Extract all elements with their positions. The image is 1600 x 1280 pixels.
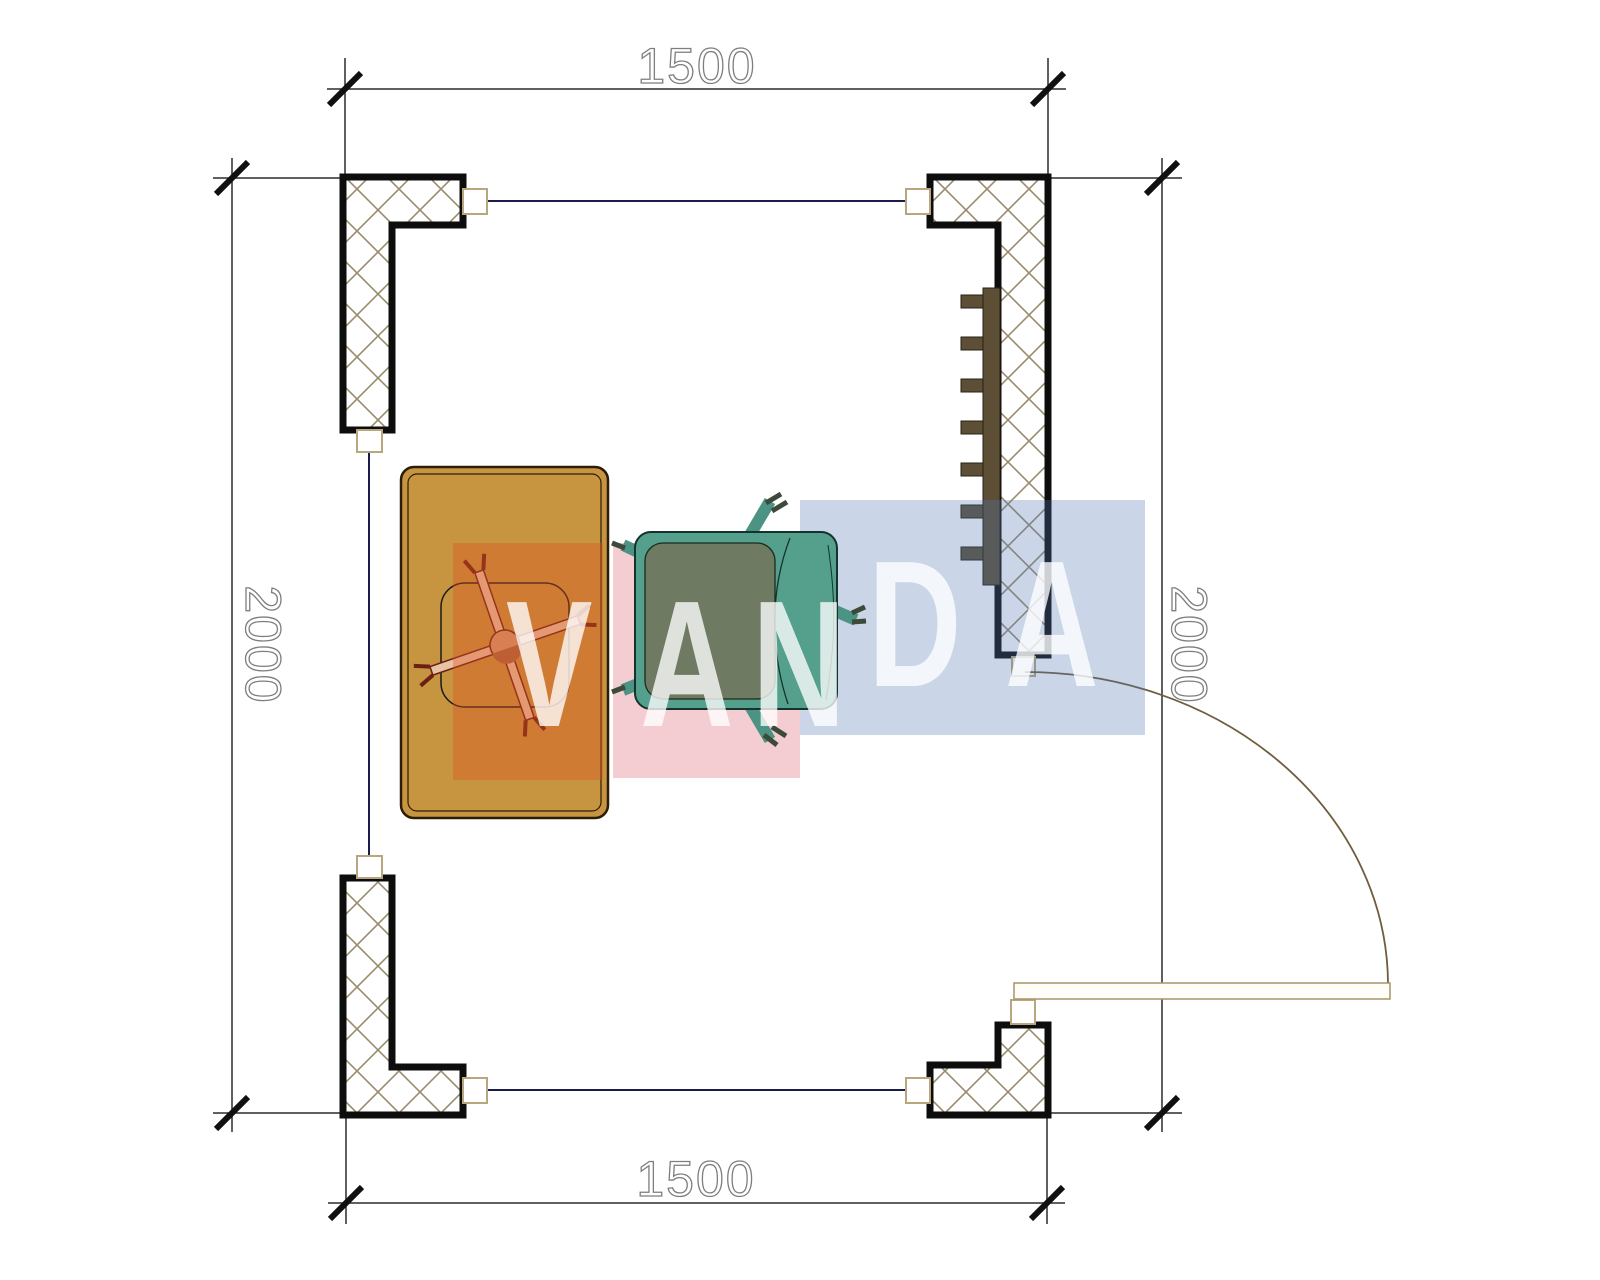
watermark-letter-d: D <box>868 524 962 725</box>
dimension-right-text: 2000 <box>1161 585 1217 704</box>
watermark-letter-a2: A <box>1005 524 1099 725</box>
floor-plan-drawing: 1500 1500 2000 2000 <box>0 0 1600 1280</box>
dimension-bottom-text: 1500 <box>636 1151 755 1207</box>
door-frame-tab-bottom <box>1011 1000 1035 1024</box>
watermark-letter-a1: A <box>640 564 734 765</box>
wall-column-bottom-left <box>343 878 463 1115</box>
watermark-letter-n: N <box>752 564 846 765</box>
floor-plan-canvas: 1500 1500 2000 2000 <box>0 0 1600 1280</box>
door-leaf <box>1014 983 1390 999</box>
dimension-top-text: 1500 <box>637 38 756 94</box>
wall-column-bottom-right <box>930 1025 1048 1115</box>
wall-column-top-left <box>343 177 463 430</box>
dimension-left-text: 2000 <box>235 585 291 704</box>
watermark-letter-v: V <box>506 564 592 765</box>
